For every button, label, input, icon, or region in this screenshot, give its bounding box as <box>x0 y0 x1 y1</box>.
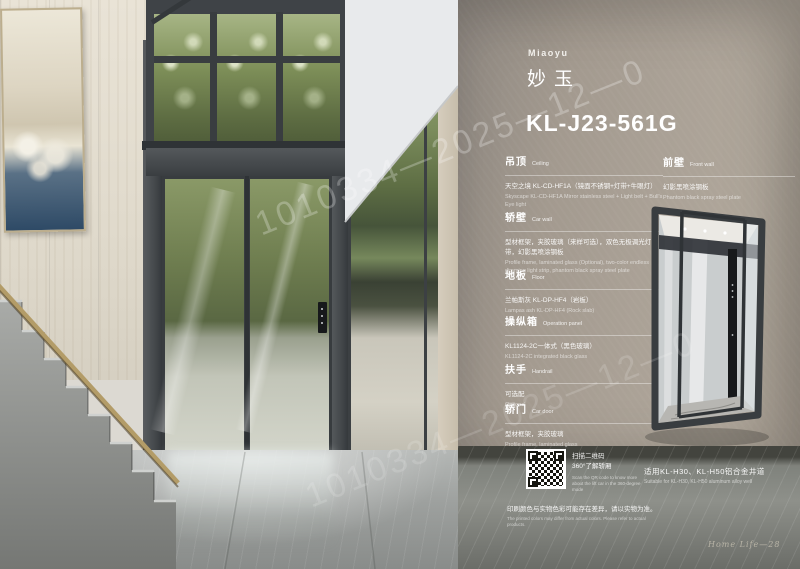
qr-caption-line2: 360°了解轿厢 <box>572 462 648 472</box>
suitable-note: 适用KL-H30、KL-H50铝合金井道 Suitable for KL-H30… <box>644 466 794 485</box>
corner-pillar <box>438 66 458 458</box>
section-title-cn: 前壁 <box>663 158 685 169</box>
section-title-cn: 操纵箱 <box>505 317 538 328</box>
section-title-en: Operation panel <box>543 321 582 327</box>
suitable-en: Suitable for KL-H30, KL-H50 aluminum all… <box>644 479 794 485</box>
elevator-car <box>146 176 348 462</box>
atrium-pane <box>154 14 210 154</box>
disclaimer-en: The printed colors may differ from actua… <box>507 516 657 529</box>
disclaimer-cn: 印刷颜色与实物色彩可能存在差异，请以实物为准。 <box>507 503 697 513</box>
qr-finder <box>528 477 538 487</box>
elevator-header-beam <box>146 148 348 176</box>
section-title-cn: 扶手 <box>505 365 527 376</box>
cop-panel <box>318 302 327 333</box>
elevator-column-right <box>332 176 348 462</box>
glass-wall-mullion <box>348 58 351 458</box>
section-title-en: Front wall <box>690 162 714 168</box>
qr-modules <box>529 452 563 486</box>
qr-caption: 扫描二维码 360°了解轿厢 Scan the QR code to know … <box>572 452 648 493</box>
atrium-pane <box>217 14 276 154</box>
window-mullion <box>154 56 340 63</box>
section-title-en: Handrail <box>532 369 552 375</box>
section-title-en: Car wall <box>532 217 552 223</box>
section-title-cn: 轿门 <box>505 405 527 416</box>
section-body-cn: 天空之境 KL-CD-HF1A（镜面不锈钢+灯带+牛眼灯） <box>505 182 663 192</box>
section-title-cn: 吊顶 <box>505 157 527 168</box>
section-body-cn: 幻影黑喷涂钢板 <box>663 183 795 193</box>
page-label: Home Life—28 <box>708 540 780 549</box>
qr-finder <box>528 451 538 461</box>
brand-name-cn: 妙玉 <box>527 64 581 91</box>
section-title-en: Car door <box>532 409 553 415</box>
elevator-floor-reflection <box>168 452 333 547</box>
qr-caption-line1: 扫描二维码 <box>572 452 648 462</box>
divider <box>663 176 795 177</box>
render-cop-column <box>728 249 737 407</box>
section-title-en: Ceiling <box>532 161 549 167</box>
section-title-cn: 地板 <box>505 271 527 282</box>
qr-finder <box>554 451 564 461</box>
interior-photo <box>0 0 458 569</box>
atrium-pane <box>283 14 340 154</box>
disclaimer: 印刷颜色与实物色彩可能存在差异，请以实物为准。 The printed colo… <box>507 503 697 529</box>
catalog-page: Miaoyu 妙玉 KL-J23-561G 吊顶Ceiling 天空之境 KL-… <box>0 0 800 569</box>
elevator-door-glass <box>162 176 332 455</box>
product-render <box>635 193 790 463</box>
divider <box>505 175 663 176</box>
spec-panel: Miaoyu 妙玉 KL-J23-561G 吊顶Ceiling 天空之境 KL-… <box>458 0 800 569</box>
suitable-cn: 适用KL-H30、KL-H50铝合金井道 <box>644 466 794 477</box>
qr-code <box>526 449 566 489</box>
glass-wall-mullion <box>424 58 427 458</box>
qr-caption-en: Scan the QR code to know more about the … <box>572 475 648 494</box>
brand-name-en: Miaoyu <box>528 48 569 58</box>
model-number: KL-J23-561G <box>526 110 678 137</box>
section-title-en: Floor <box>532 275 545 281</box>
section-title-cn: 轿壁 <box>505 213 527 224</box>
framed-artwork <box>0 7 86 232</box>
